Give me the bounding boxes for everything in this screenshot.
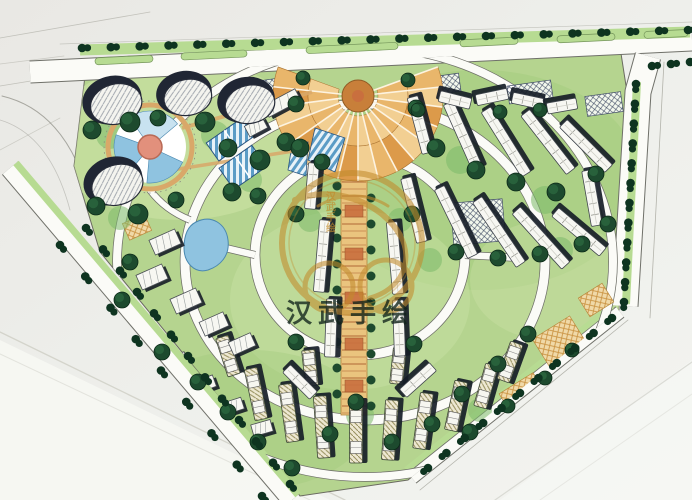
tree-highlight xyxy=(251,189,260,198)
axis-tree xyxy=(367,402,376,411)
street-tree xyxy=(401,35,408,42)
street-tree xyxy=(137,293,144,300)
street-tree xyxy=(567,348,574,355)
street-tree xyxy=(171,335,178,342)
street-tree xyxy=(549,363,556,370)
street-tree xyxy=(86,229,93,236)
tree-highlight xyxy=(220,140,230,150)
street-tree xyxy=(188,357,195,364)
street-tree xyxy=(439,453,446,460)
axis-tree xyxy=(367,272,376,281)
tree-highlight xyxy=(252,152,263,163)
tree-highlight xyxy=(130,206,141,217)
street-tree xyxy=(623,244,630,251)
street-tree xyxy=(420,468,427,475)
tree-highlight xyxy=(601,217,610,226)
street-tree xyxy=(531,378,538,385)
tree-highlight xyxy=(292,140,302,150)
street-tree xyxy=(628,165,635,172)
street-tree xyxy=(60,246,67,253)
street-tree xyxy=(632,28,639,35)
street-tree xyxy=(604,318,611,325)
street-tree xyxy=(154,314,161,321)
street-tree xyxy=(627,185,634,192)
tree-highlight xyxy=(285,461,294,470)
street-tree xyxy=(103,250,110,257)
street-tree xyxy=(222,399,229,406)
tree-highlight xyxy=(289,335,298,344)
street-tree xyxy=(517,31,524,38)
tree-highlight xyxy=(297,72,305,80)
street-tree xyxy=(256,442,263,449)
axis-pavilion xyxy=(345,248,363,260)
tree-highlight xyxy=(407,337,416,346)
watermark-brand-text: 汉武手绘 xyxy=(286,298,414,329)
tree-highlight xyxy=(191,375,200,384)
tree-highlight xyxy=(323,427,332,436)
street-tree xyxy=(372,36,379,43)
street-tree xyxy=(512,393,519,400)
street-tree xyxy=(142,43,149,50)
axis-tree xyxy=(367,350,376,359)
tree-highlight xyxy=(449,245,458,254)
tree-highlight xyxy=(224,184,234,194)
street-tree xyxy=(622,264,629,271)
tree-highlight xyxy=(315,155,324,164)
street-tree xyxy=(239,421,246,428)
tree-highlight xyxy=(122,114,133,125)
axis-pavilion xyxy=(345,380,363,392)
axis-tree xyxy=(367,376,376,385)
tree-highlight xyxy=(533,247,542,256)
street-tree xyxy=(161,371,168,378)
axis-tree xyxy=(367,220,376,229)
tree-highlight xyxy=(463,425,472,434)
street-tree xyxy=(457,438,464,445)
tree-highlight xyxy=(278,134,288,144)
street-tree xyxy=(273,463,280,470)
axis-pavilion xyxy=(345,205,363,217)
tree-highlight xyxy=(412,104,420,112)
tree-highlight xyxy=(169,193,178,202)
street-tree xyxy=(110,308,117,315)
street-tree xyxy=(621,284,628,291)
street-tree xyxy=(85,277,92,284)
street-tree xyxy=(475,423,482,430)
tree-highlight xyxy=(115,293,124,302)
street-tree xyxy=(654,62,661,69)
tree-highlight xyxy=(589,167,598,176)
street-tree xyxy=(620,304,627,311)
tree-highlight xyxy=(468,162,478,172)
street-tree xyxy=(170,42,177,49)
street-tree xyxy=(237,465,244,472)
street-tree xyxy=(199,41,206,48)
tree-highlight xyxy=(508,174,518,184)
street-tree xyxy=(228,40,235,47)
street-tree xyxy=(574,30,581,37)
axis-pavilion xyxy=(345,338,363,350)
street-tree xyxy=(661,27,668,34)
tree-highlight xyxy=(84,122,94,132)
street-tree xyxy=(84,44,91,51)
tree-highlight xyxy=(197,114,208,125)
master-plan-canvas: 汉武手绘 汉武手绘 xyxy=(0,0,692,500)
street-tree xyxy=(632,86,639,93)
tree-highlight xyxy=(385,435,394,444)
street-tree xyxy=(136,340,143,347)
street-tree xyxy=(430,34,437,41)
watermark-vertical-text: 汉武手绘 xyxy=(326,190,337,235)
street-tree xyxy=(546,31,553,38)
tree-highlight xyxy=(289,97,298,106)
street-tree xyxy=(630,126,637,133)
street-tree xyxy=(624,225,631,232)
plaza-hub-center xyxy=(352,90,364,102)
tree-highlight xyxy=(349,395,358,404)
tree-highlight xyxy=(494,106,502,114)
axis-tree xyxy=(333,390,342,399)
tree-highlight xyxy=(155,345,164,354)
tree-highlight xyxy=(402,74,410,82)
tree-highlight xyxy=(575,237,584,246)
street-tree xyxy=(186,403,193,410)
shrub xyxy=(108,206,132,230)
tree-highlight xyxy=(123,255,132,264)
street-tree xyxy=(286,38,293,45)
street-tree xyxy=(257,39,264,46)
street-tree xyxy=(120,271,127,278)
street-tree xyxy=(626,205,633,212)
street-tree xyxy=(113,43,120,50)
axis-tree xyxy=(333,364,342,373)
street-tree xyxy=(211,434,218,441)
street-tree xyxy=(459,33,466,40)
axis-tree xyxy=(367,246,376,255)
tree-highlight xyxy=(151,111,160,120)
tree-highlight xyxy=(428,140,438,150)
street-tree xyxy=(603,29,610,36)
tree-highlight xyxy=(534,104,542,112)
street-tree xyxy=(205,378,212,385)
street-tree xyxy=(315,37,322,44)
tree-highlight xyxy=(88,198,98,208)
street-tree xyxy=(631,106,638,113)
tree-highlight xyxy=(455,387,464,396)
street-tree xyxy=(629,145,636,152)
tree-highlight xyxy=(548,184,558,194)
street-tree xyxy=(494,408,501,415)
tree-highlight xyxy=(491,357,500,366)
street-tree xyxy=(290,485,297,492)
street-tree xyxy=(488,32,495,39)
tree-highlight xyxy=(425,417,434,426)
tree-highlight xyxy=(521,327,530,336)
street-tree xyxy=(673,60,680,67)
street-tree xyxy=(344,37,351,44)
tree-highlight xyxy=(491,251,500,260)
axis-tree xyxy=(333,286,342,295)
street-tree xyxy=(586,333,593,340)
site-plan-drawing: 汉武手绘 汉武手绘 xyxy=(0,0,692,500)
